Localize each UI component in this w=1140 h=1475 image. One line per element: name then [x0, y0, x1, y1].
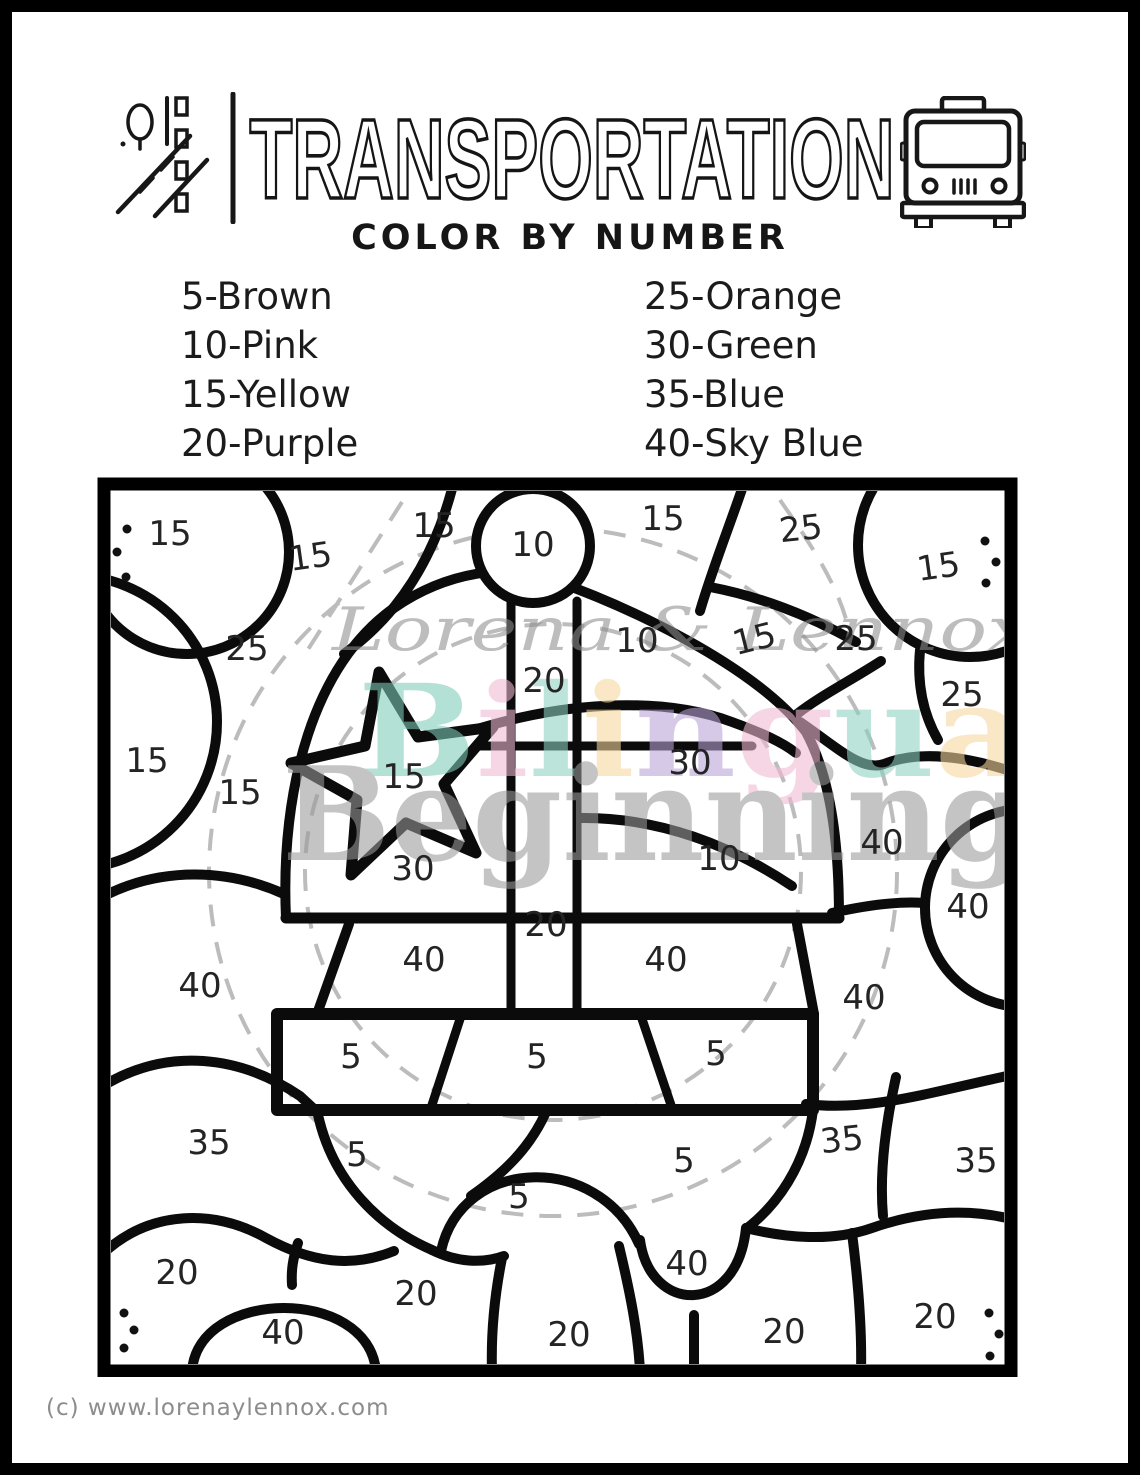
copyright-credit: (c) www.lorenaylennox.com: [46, 1395, 390, 1421]
region-label: 5: [673, 1141, 695, 1181]
legend-item: 40-Sky Blue: [644, 419, 864, 468]
color-key-left-column: 5-Brown10-Pink15-Yellow20-Purple: [181, 272, 358, 468]
corner-dot: [981, 537, 990, 546]
region-label: 5: [705, 1034, 727, 1074]
deck-left-edge: [317, 924, 349, 1014]
region-label: 35: [954, 1141, 997, 1181]
region-label: 30: [391, 849, 434, 889]
region-label: 35: [818, 1118, 865, 1162]
bus-icon: [900, 96, 1026, 228]
corner-dot: [130, 1326, 139, 1335]
page-title: TRANSPORTATION: [249, 97, 894, 223]
region-label: 10: [511, 525, 554, 565]
legend-item: 30-Green: [644, 321, 864, 370]
corner-dot: [120, 1309, 129, 1318]
region-label: 40: [946, 887, 989, 927]
region-label: 25: [940, 675, 983, 715]
corner-dot: [122, 573, 131, 582]
worksheet-page: TRANSPORTATION COLOR BY NUMBER 5-Brown10…: [0, 0, 1140, 1475]
region-label: 15: [218, 773, 261, 813]
region-label: 15: [286, 534, 334, 580]
color-key-right-column: 25-Orange30-Green35-Blue40-Sky Blue: [644, 272, 864, 468]
legend-item: 20-Purple: [181, 419, 358, 468]
region-label: 25: [777, 507, 824, 551]
region-label: 15: [641, 499, 684, 539]
region-label: 5: [340, 1037, 362, 1077]
corner-dot: [986, 1352, 995, 1361]
region-label: 15: [914, 544, 962, 590]
region-label: 40: [860, 823, 903, 863]
hull-band-divider-2: [641, 1016, 672, 1108]
region-label: 20: [522, 661, 565, 701]
region-label: 40: [261, 1313, 304, 1353]
legend-item: 25-Orange: [644, 272, 864, 321]
region-label: 40: [842, 978, 885, 1018]
region-label: 20: [913, 1297, 956, 1337]
region-label: 10: [615, 621, 658, 661]
corner-dot: [123, 525, 132, 534]
region-label: 20: [547, 1315, 590, 1355]
region-label: 15: [382, 757, 425, 797]
region-label: 20: [762, 1312, 805, 1352]
region-label: 20: [524, 905, 567, 945]
region-label: 35: [187, 1123, 230, 1163]
legend-item: 35-Blue: [644, 370, 864, 419]
road-icon: [110, 92, 240, 224]
watermark-script: Lorena & Lennox: [331, 595, 1025, 665]
region-label: 20: [394, 1274, 437, 1314]
region-label: 20: [155, 1253, 198, 1293]
region-label: 5: [346, 1135, 368, 1175]
region-label: 15: [412, 506, 455, 546]
corner-dot: [982, 579, 991, 588]
region-label: 40: [665, 1244, 708, 1284]
page-subtitle: COLOR BY NUMBER: [0, 218, 1140, 258]
title-banner: TRANSPORTATION: [242, 90, 902, 230]
deck-right-edge: [797, 924, 814, 1014]
legend-item: 15-Yellow: [181, 370, 358, 419]
region-label: 30: [668, 743, 711, 783]
legend-item: 5-Brown: [181, 272, 358, 321]
region-label: 25: [225, 629, 268, 669]
region-label: 40: [644, 940, 687, 980]
legend-item: 10-Pink: [181, 321, 358, 370]
corner-dot: [995, 1330, 1004, 1339]
region-label: 15: [125, 741, 168, 781]
corner-dot: [985, 1309, 994, 1318]
corner-dot: [120, 1344, 129, 1353]
region-label: 40: [178, 966, 221, 1006]
region-label: 5: [526, 1037, 548, 1077]
coloring-picture: Lorena & Lennox Bilingual Beginnings 151…: [95, 472, 1025, 1377]
region-label: 5: [508, 1177, 530, 1217]
region-label: 15: [148, 514, 191, 554]
region-label: 40: [402, 940, 445, 980]
corner-dot: [113, 548, 122, 557]
corner-dot: [992, 558, 1001, 567]
region-label: 10: [697, 839, 740, 879]
region-label: 25: [834, 619, 877, 659]
